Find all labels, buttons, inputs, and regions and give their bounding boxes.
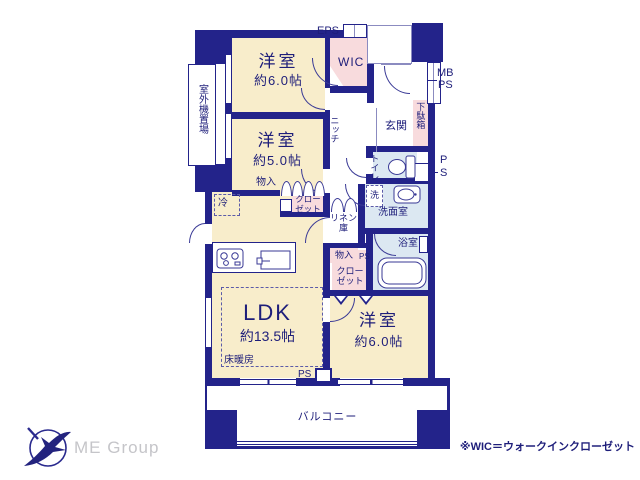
wall — [330, 290, 435, 296]
eps-tick — [339, 30, 344, 31]
wall — [323, 243, 372, 248]
entry-alcove — [367, 25, 412, 64]
bathtub-icon — [377, 257, 427, 289]
service-door-arc — [189, 223, 205, 243]
toilet-label: トイレ — [369, 154, 379, 181]
washroom-label: 洗面室 — [378, 207, 408, 219]
ps-bottom-label: PS — [298, 369, 311, 381]
bedroom-mid-size: 約5.0帖 — [232, 154, 323, 169]
eps-label: EPS — [317, 25, 339, 38]
mb-label: MB — [437, 67, 454, 80]
wic-note: ※WIC＝ウォークインクローゼット — [430, 441, 635, 454]
linen-label: リネン庫 — [330, 213, 357, 234]
closet-bottom-label: クローゼット — [333, 266, 367, 287]
toilet-icon — [387, 155, 417, 180]
storage-bottom-label: 物入 — [330, 250, 358, 260]
wall — [205, 192, 212, 385]
window — [225, 114, 232, 158]
window — [225, 55, 232, 103]
toilet-door-arc — [346, 158, 366, 178]
outdoor-unit-label: 室外機置場 — [196, 84, 208, 134]
window — [205, 298, 212, 347]
balcony-rail — [237, 441, 417, 445]
door-opening — [323, 298, 330, 322]
washbasin-icon — [393, 185, 421, 204]
mb-tick — [428, 80, 437, 81]
stove-icon — [216, 248, 244, 269]
ldk-label: LDK — [212, 300, 323, 325]
ps-small-label: PS — [359, 252, 370, 261]
genkan-label: 玄関 — [385, 120, 407, 133]
eps-box-line — [354, 25, 355, 37]
wall — [205, 378, 240, 386]
bedroom-bottom-size: 約6.0帖 — [330, 335, 428, 350]
ldk-size: 約13.5帖 — [212, 328, 323, 344]
floor-plan: EPS MB PS PS 洋室 約6.0帖 WIC 洋室 約5.0帖 玄関 下駄… — [0, 0, 640, 480]
wic-label: WIC — [338, 56, 364, 70]
shoe-cabinet-label: 下駄箱 — [415, 102, 425, 129]
kitchen-sink-icon — [256, 249, 292, 271]
eps-box — [343, 24, 367, 38]
niche-label: ニッチ — [329, 116, 339, 143]
bath-counter — [419, 236, 428, 253]
balcony-label: バルコニー — [205, 411, 450, 424]
floor-heating-label: 床暖房 — [224, 355, 254, 367]
window — [240, 379, 296, 385]
linen-door-leaf — [331, 198, 344, 212]
storage-mid-small-box — [280, 199, 292, 212]
wall — [232, 112, 330, 119]
genkan-step-line — [376, 108, 377, 152]
meter-box-line — [433, 63, 434, 103]
wall — [403, 378, 450, 386]
pillar — [412, 23, 443, 62]
bedroom-top-size: 約6.0帖 — [232, 74, 325, 89]
storage-mid-label: 物入 — [256, 177, 276, 189]
bathroom-label: 浴室 — [398, 238, 418, 250]
ps-label-top: PS — [438, 79, 453, 92]
wall — [205, 185, 232, 192]
entry-sill — [381, 64, 411, 65]
bedroom-top-label: 洋室 — [232, 52, 325, 72]
entrance-door-arc — [384, 66, 410, 94]
bedroom-mid-label: 洋室 — [232, 131, 323, 151]
fridge-label: 冷 — [218, 198, 228, 210]
me-group-logo-icon — [16, 420, 74, 476]
wall — [366, 228, 373, 296]
closet-mid-label: クローゼット — [293, 195, 323, 215]
ps-label-right: PS — [437, 154, 450, 180]
wall — [428, 103, 435, 385]
bedroom-bottom-label: 洋室 — [330, 311, 428, 331]
window — [338, 379, 403, 385]
ps-bottom-box — [315, 368, 332, 383]
door-opening — [325, 88, 330, 110]
balcony-edge — [205, 446, 450, 449]
washer-label: 洗 — [370, 190, 379, 200]
me-group-logo-text: ME Group — [74, 438, 159, 458]
door-opening — [205, 224, 212, 244]
ps-tick — [429, 172, 438, 173]
